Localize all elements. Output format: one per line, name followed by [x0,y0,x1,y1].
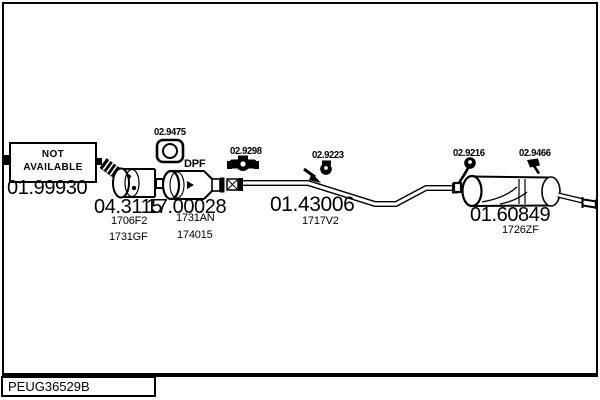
part-number-front-section: 01.99930 [7,177,87,199]
not-available-line2: AVAILABLE [11,161,95,174]
rear-muffler [463,176,561,206]
fitting-label-hanger-rear: 02.9216 [453,148,485,159]
oe-ref: 174015 [177,229,213,241]
sleeve-joint [227,178,243,191]
fitting-label-clamp-square: 02.9475 [154,127,186,138]
square-clamp-icon [157,140,183,162]
not-available-line1: NOT [11,148,95,161]
tail-hook-icon [527,159,540,174]
muffler-inlet-joint [454,183,461,192]
part-number-mid-pipe: 01.43006 [270,194,354,216]
diagram-code: PEUG36529B [8,379,90,394]
diagram-code-box: PEUG36529B [1,376,156,397]
oe-ref: 1706F2 [111,215,147,227]
exhaust-parts-diagram: NOT AVAILABLE DPF 01.99930 04.3115 17.00… [0,0,600,400]
oe-ref: 1726ZF [502,224,539,236]
bolted-clamp-icon [227,156,259,172]
fitting-label-hook-tail: 02.9466 [519,148,551,159]
oe-ref: 1731GF [109,231,148,243]
tail-pipe [558,195,596,209]
oe-ref: 1717V2 [302,215,339,227]
fitting-label-clamp-bolted: 02.9298 [230,146,262,157]
catalytic-converter [113,169,155,198]
dpf-tag: DPF [184,158,205,170]
rubber-hanger-icon [304,161,332,184]
dpf-body [163,171,225,199]
flow-arrow-icon [187,181,194,189]
oe-ref: 1731AN [176,212,215,224]
fitting-label-hanger-mid: 02.9223 [312,150,344,161]
part-number-rear-muffler: 01.60849 [470,204,550,226]
